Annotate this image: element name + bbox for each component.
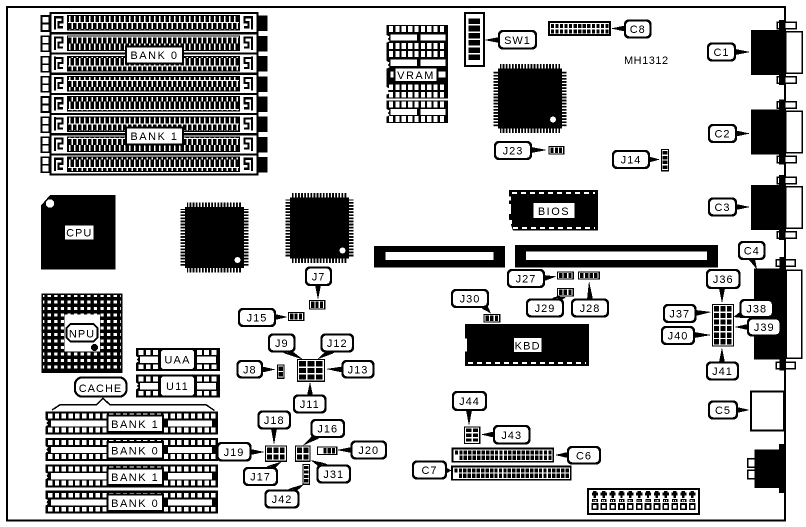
svg-text:NPU: NPU — [69, 328, 95, 340]
svg-text:CACHE: CACHE — [79, 383, 123, 395]
svg-text:J7: J7 — [312, 271, 326, 283]
svg-text:BANK 1: BANK 1 — [111, 472, 159, 484]
svg-text:C8: C8 — [630, 24, 646, 36]
svg-text:J42: J42 — [272, 494, 293, 506]
svg-text:BANK 0: BANK 0 — [111, 498, 159, 510]
svg-text:BANK 1: BANK 1 — [111, 419, 159, 431]
svg-text:J13: J13 — [348, 364, 369, 376]
svg-text:J15: J15 — [247, 313, 268, 325]
svg-text:J16: J16 — [317, 424, 338, 436]
svg-text:C7: C7 — [421, 465, 437, 477]
svg-text:U11: U11 — [166, 381, 189, 393]
svg-text:J23: J23 — [503, 146, 524, 158]
svg-text:C3: C3 — [714, 202, 730, 214]
svg-text:J18: J18 — [264, 415, 285, 427]
svg-text:J31: J31 — [323, 469, 344, 481]
svg-text:BANK 0: BANK 0 — [111, 446, 159, 458]
svg-text:J37: J37 — [669, 309, 690, 321]
svg-text:C5: C5 — [715, 405, 731, 417]
svg-text:J38: J38 — [746, 304, 767, 316]
svg-text:J43: J43 — [501, 430, 522, 442]
svg-text:J11: J11 — [300, 399, 320, 411]
svg-text:J36: J36 — [713, 274, 734, 286]
svg-text:J41: J41 — [712, 366, 733, 378]
svg-text:C4: C4 — [744, 246, 760, 258]
svg-text:C2: C2 — [714, 129, 730, 141]
svg-text:C6: C6 — [576, 450, 592, 462]
svg-text:BANK 0: BANK 0 — [130, 50, 178, 62]
svg-text:J28: J28 — [580, 303, 601, 315]
svg-text:VRAM: VRAM — [397, 70, 435, 82]
svg-text:BIOS: BIOS — [538, 206, 570, 218]
svg-text:SW1: SW1 — [504, 35, 531, 47]
svg-text:J17: J17 — [250, 472, 271, 484]
svg-text:J39: J39 — [754, 322, 775, 334]
svg-text:CPU: CPU — [66, 228, 92, 240]
svg-text:J12: J12 — [327, 338, 348, 350]
svg-text:J20: J20 — [358, 445, 379, 457]
svg-text:UAA: UAA — [164, 355, 190, 367]
svg-text:J14: J14 — [621, 155, 642, 167]
svg-text:KBD: KBD — [515, 341, 541, 353]
svg-text:J8: J8 — [243, 364, 257, 376]
svg-text:BANK 1: BANK 1 — [130, 131, 178, 143]
svg-text:J29: J29 — [535, 303, 556, 315]
svg-text:J9: J9 — [275, 338, 289, 350]
svg-text:C1: C1 — [713, 47, 729, 59]
svg-text:J30: J30 — [460, 294, 481, 306]
svg-text:J40: J40 — [668, 331, 689, 343]
svg-text:J19: J19 — [224, 447, 245, 459]
svg-text:J27: J27 — [516, 274, 537, 286]
svg-text:MH1312: MH1312 — [624, 55, 669, 67]
svg-text:J44: J44 — [459, 396, 480, 408]
